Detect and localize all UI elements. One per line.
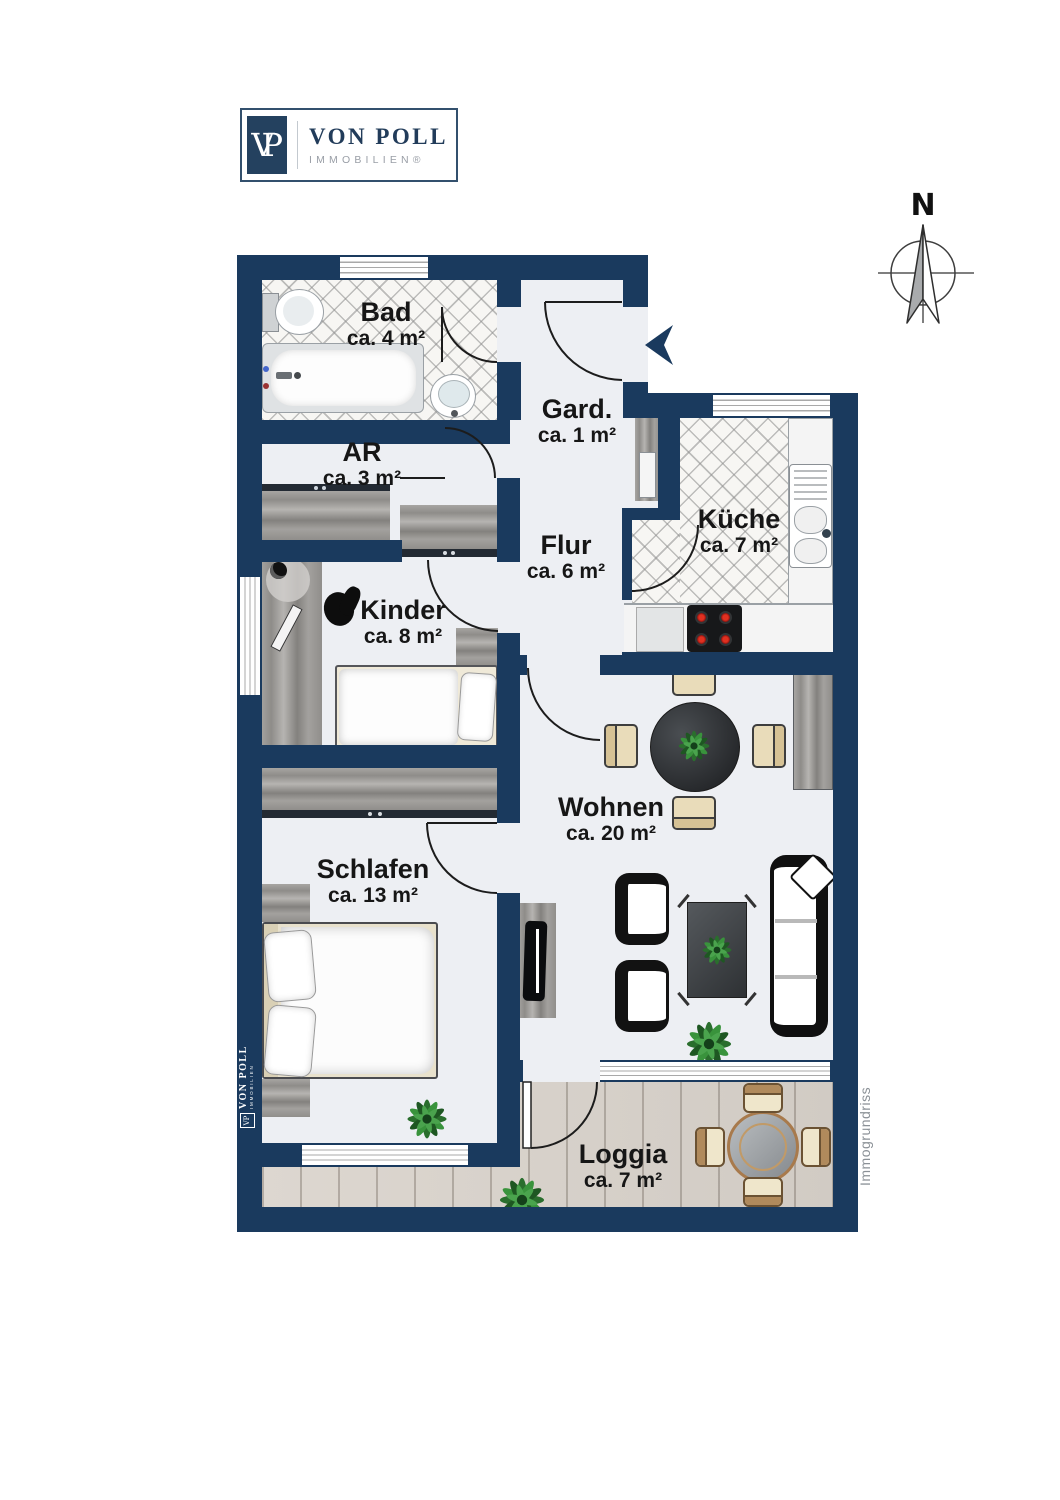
bathtub-drain bbox=[294, 372, 301, 379]
wall bbox=[622, 508, 680, 520]
wall bbox=[622, 520, 632, 600]
wall-watermark-subtitle: IMMOBILIEN bbox=[249, 1045, 255, 1109]
hall-closet-handle bbox=[451, 551, 455, 555]
loggia-doorway-floor bbox=[523, 1060, 600, 1082]
ar-wardrobe bbox=[262, 491, 390, 540]
armchair bbox=[615, 960, 669, 1032]
window bbox=[340, 257, 428, 278]
kids-nightstand bbox=[456, 628, 498, 666]
wall bbox=[622, 652, 858, 675]
wall bbox=[237, 255, 648, 280]
wall bbox=[497, 1060, 520, 1167]
entrance-arrow-icon bbox=[645, 325, 673, 365]
wall-watermark-monogram: VP bbox=[240, 1113, 255, 1128]
wall bbox=[833, 393, 858, 1232]
bathtub-knob-cold bbox=[263, 366, 269, 372]
bathtub-knob-hot bbox=[263, 383, 269, 389]
toilet-bowl-inner bbox=[283, 296, 314, 326]
wall-watermark-name: VON POLL bbox=[239, 1045, 249, 1109]
nightstand bbox=[262, 1079, 310, 1117]
kitchen-tiles bbox=[680, 418, 788, 603]
wall bbox=[237, 540, 402, 562]
kids-bed-duvet bbox=[339, 669, 458, 745]
bedroom-wardrobe bbox=[262, 768, 498, 810]
bed-pillow bbox=[263, 1004, 317, 1078]
bed-pillow bbox=[263, 929, 317, 1003]
ar-wardrobe-handle bbox=[314, 486, 318, 490]
hall-closet bbox=[400, 505, 497, 549]
loggia-chair bbox=[743, 1177, 783, 1207]
wall bbox=[497, 655, 527, 675]
sofa-cushion-gap bbox=[775, 919, 817, 923]
bathtub-faucet bbox=[276, 372, 292, 379]
window bbox=[713, 395, 830, 416]
wall bbox=[623, 255, 648, 307]
wall bbox=[623, 382, 648, 418]
dining-chair bbox=[604, 724, 638, 768]
side-watermark: Immogrundriss bbox=[857, 1087, 873, 1186]
window bbox=[600, 1062, 830, 1080]
loggia-chair bbox=[743, 1083, 783, 1113]
loggia-table-ring bbox=[739, 1123, 787, 1171]
hall-closet-handle bbox=[443, 551, 447, 555]
kitchen-drainer bbox=[794, 470, 827, 501]
dining-chair bbox=[752, 724, 786, 768]
sideboard bbox=[793, 668, 833, 790]
stove-burner bbox=[695, 633, 708, 646]
wall bbox=[497, 362, 521, 420]
hall-closet-edge bbox=[400, 549, 497, 557]
stove-burner bbox=[719, 611, 732, 624]
kitchen-cabinet bbox=[636, 607, 684, 652]
wall bbox=[497, 280, 521, 307]
wall-watermark: VP VON POLL IMMOBILIEN bbox=[239, 1045, 255, 1128]
bathtub-inner bbox=[271, 350, 416, 406]
loggia-chair bbox=[801, 1127, 831, 1167]
ar-wardrobe-handle bbox=[322, 486, 326, 490]
wall bbox=[497, 768, 520, 823]
stove bbox=[687, 605, 742, 652]
kitchen-tiles-door bbox=[632, 518, 680, 603]
bedroom-wardrobe-handle bbox=[368, 812, 372, 816]
wall bbox=[497, 478, 520, 562]
wall bbox=[497, 893, 520, 1060]
sofa-cushion-gap bbox=[775, 975, 817, 979]
bedroom-wardrobe-handle bbox=[378, 812, 382, 816]
tv-stand-slat bbox=[536, 929, 539, 993]
kitchen-faucet bbox=[822, 529, 831, 538]
wall bbox=[658, 413, 680, 508]
floorplan-page: { "brand": { "monogram_v": "V", "monogra… bbox=[0, 0, 1060, 1500]
stove-burner bbox=[719, 633, 732, 646]
desk-lamp bbox=[270, 562, 287, 579]
dining-chair bbox=[672, 796, 716, 830]
kids-bed-pillow bbox=[457, 672, 498, 742]
wall bbox=[600, 655, 622, 675]
stove-burner bbox=[695, 611, 708, 624]
plant-icon bbox=[676, 728, 712, 764]
nightstand bbox=[262, 884, 310, 922]
bath-sink-basin bbox=[438, 380, 470, 408]
loggia-chair bbox=[695, 1127, 725, 1167]
bath-sink-faucet bbox=[451, 410, 458, 417]
plant-icon bbox=[700, 933, 734, 967]
plant-icon bbox=[404, 1096, 450, 1142]
wall bbox=[237, 745, 520, 768]
wall bbox=[497, 633, 520, 745]
window bbox=[302, 1145, 468, 1165]
wall bbox=[262, 420, 510, 444]
armchair bbox=[615, 873, 669, 945]
entry-doorway-floor bbox=[623, 307, 648, 382]
wardrobe-gard-inset bbox=[639, 452, 656, 498]
kitchen-sink-bowl-2 bbox=[794, 538, 827, 564]
window bbox=[240, 577, 260, 695]
wall bbox=[237, 1207, 858, 1232]
tv bbox=[523, 921, 548, 1002]
floor-plan: Bad ca. 4 m² AR ca. 3 m² Gard. ca. 1 m² … bbox=[0, 0, 1060, 1500]
ar-wardrobe-edge bbox=[262, 484, 390, 491]
